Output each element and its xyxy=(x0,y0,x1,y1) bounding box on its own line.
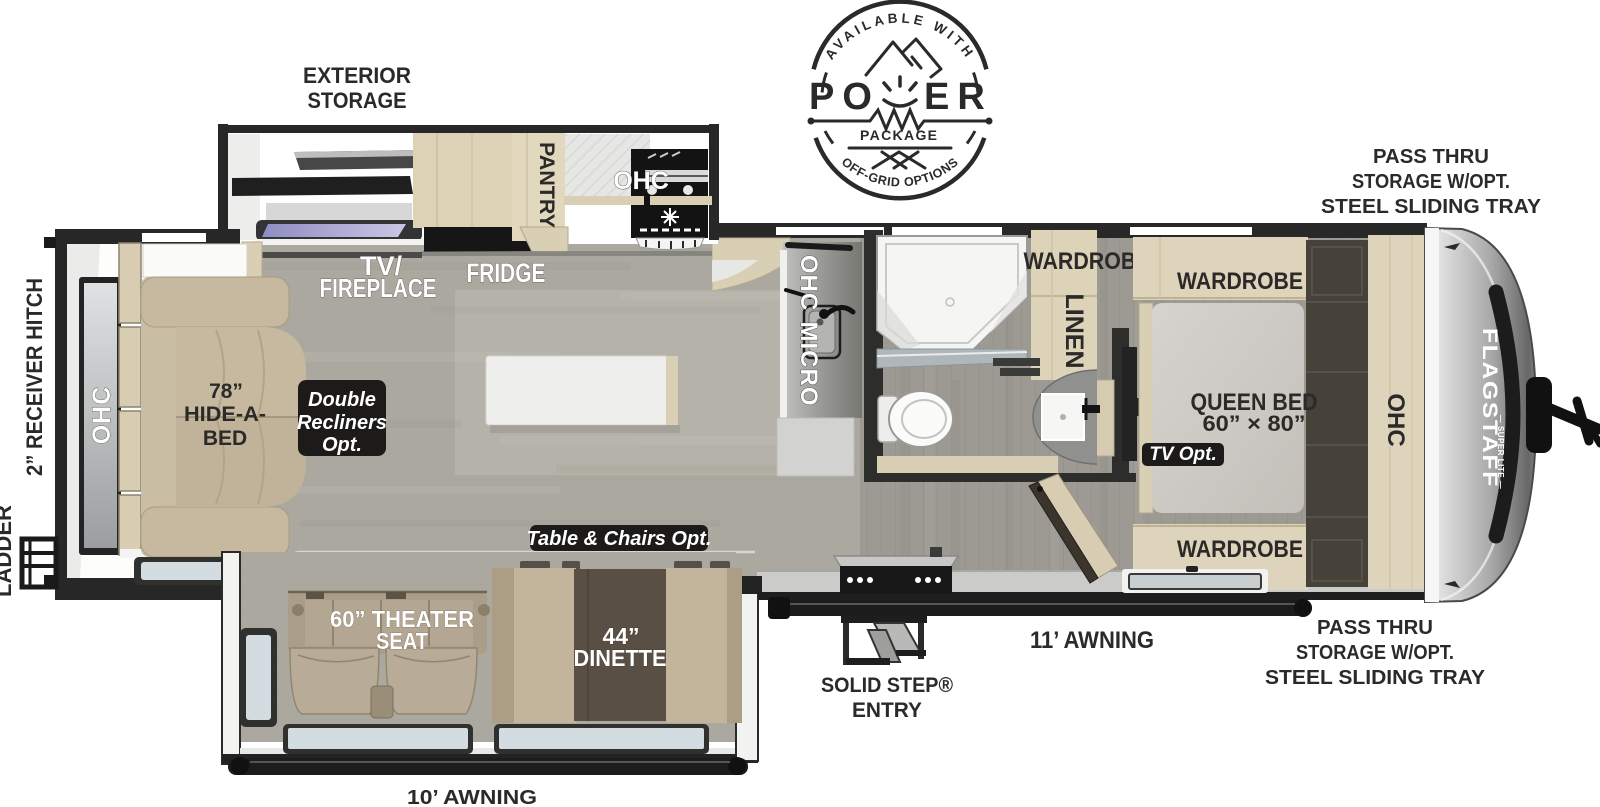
svg-text:SEAT: SEAT xyxy=(376,628,428,654)
svg-text:PASS THRU: PASS THRU xyxy=(1373,146,1489,168)
svg-text:OHC: OHC xyxy=(613,167,669,195)
svg-text:DINETTE: DINETTE xyxy=(574,645,667,671)
svg-text:PANTRY: PANTRY xyxy=(535,142,558,228)
svg-text:WARDROBE: WARDROBE xyxy=(1024,248,1151,275)
svg-text:PACKAGE: PACKAGE xyxy=(860,127,940,143)
svg-text:SOLID STEP®: SOLID STEP® xyxy=(821,674,953,697)
svg-text:MICRO: MICRO xyxy=(795,322,822,407)
svg-text:FRIDGE: FRIDGE xyxy=(467,258,546,288)
svg-text:WARDROBE: WARDROBE xyxy=(1177,268,1303,295)
svg-text:PASS THRU: PASS THRU xyxy=(1317,617,1433,639)
svg-text:10’ AWNING: 10’ AWNING xyxy=(407,787,537,807)
svg-text:60” × 80”: 60” × 80” xyxy=(1203,411,1306,436)
svg-text:11’ AWNING: 11’ AWNING xyxy=(1030,627,1154,654)
svg-text:ENTRY: ENTRY xyxy=(852,699,922,722)
svg-text:Table & Chairs Opt.: Table & Chairs Opt. xyxy=(527,528,712,550)
svg-text:EXTERIOR: EXTERIOR xyxy=(303,63,411,88)
svg-text:PO: PO xyxy=(809,76,880,118)
svg-text:STEEL SLIDING TRAY: STEEL SLIDING TRAY xyxy=(1265,667,1486,689)
svg-text:FIREPLACE: FIREPLACE xyxy=(320,273,437,303)
svg-text:78”: 78” xyxy=(209,380,243,403)
svg-text:Double: Double xyxy=(308,389,376,411)
svg-text:LINEN: LINEN xyxy=(1060,294,1088,369)
svg-text:Recliners: Recliners xyxy=(297,412,387,434)
svg-text:STORAGE W/OPT.: STORAGE W/OPT. xyxy=(1296,642,1454,664)
svg-text:LADDER: LADDER xyxy=(0,505,16,597)
svg-text:OHC: OHC xyxy=(795,255,822,311)
svg-text:STORAGE W/OPT.: STORAGE W/OPT. xyxy=(1352,171,1510,193)
svg-text:2” RECEIVER HITCH: 2” RECEIVER HITCH xyxy=(22,278,47,476)
svg-text:OHC: OHC xyxy=(1382,393,1409,446)
svg-text:ER: ER xyxy=(924,76,993,118)
svg-text:Opt.: Opt. xyxy=(322,434,362,456)
svg-text:TV Opt.: TV Opt. xyxy=(1149,444,1217,465)
svg-text:WARDROBE: WARDROBE xyxy=(1177,536,1303,563)
svg-text:STEEL SLIDING TRAY: STEEL SLIDING TRAY xyxy=(1321,196,1542,218)
svg-text:BED: BED xyxy=(203,427,247,450)
svg-text:STORAGE: STORAGE xyxy=(308,88,407,113)
svg-text:HIDE-A-: HIDE-A- xyxy=(184,403,266,426)
svg-text:OHC: OHC xyxy=(88,386,116,445)
svg-text:— SUPER LITE —: — SUPER LITE — xyxy=(1496,415,1505,490)
